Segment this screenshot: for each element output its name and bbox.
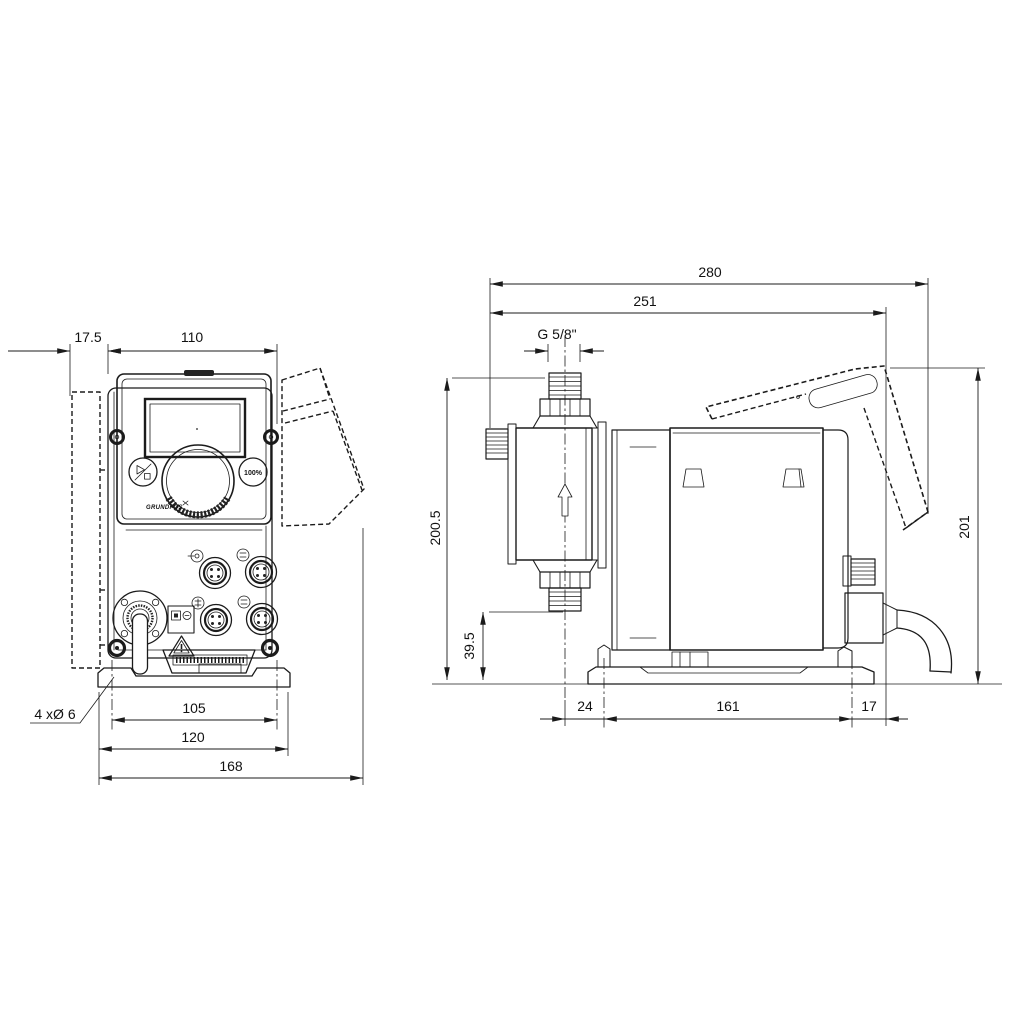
dim-side-cube-height: 201 (956, 515, 972, 539)
dim-side-depth-to-gland: 251 (633, 293, 657, 309)
din-rail-clip-front (163, 650, 255, 673)
control-cube-tilted-side (706, 366, 928, 530)
mounting-foot-side (588, 645, 874, 730)
holes-label: 4 xØ 6 (34, 706, 75, 722)
deaeration-knob[interactable] (486, 429, 508, 459)
control-cube-tilted-front (282, 368, 364, 526)
m12-connector[interactable] (200, 558, 231, 589)
grundfos-logo: GRUNDFOS (146, 501, 188, 511)
cable-gland-side (843, 556, 952, 673)
svg-text:GRUNDFOS: GRUNDFOS (146, 505, 183, 511)
dosing-head (486, 373, 606, 611)
m12-connector[interactable] (247, 604, 278, 635)
vent-slot (683, 469, 704, 487)
pump-housing-side (612, 428, 848, 650)
capacity-button-label: 100% (244, 470, 263, 477)
m12-connector[interactable] (246, 557, 277, 588)
side-view: 280 251 G 5/8" (427, 264, 1002, 730)
cable-gland-front (113, 591, 167, 674)
dim-side-foot-front-offset: 24 (577, 698, 593, 714)
dim-side-valve-height: 39.5 (461, 632, 477, 659)
housing-screw-right (263, 641, 278, 656)
play-stop-icon (135, 464, 151, 480)
start-stop-button[interactable] (129, 458, 157, 486)
mounting-holes-note: 4 xØ 6 (30, 677, 114, 723)
dim-side-foot-hole-spacing: 161 (716, 698, 740, 714)
back-plate-hidden (72, 392, 108, 668)
dim-front-width: 110 (181, 329, 204, 345)
dim-front-overall-width: 168 (219, 758, 243, 774)
mounting-plate-front (98, 660, 290, 730)
dim-side-overall-height: 200.5 (427, 510, 443, 545)
housing-screw-left (110, 641, 125, 656)
dim-connection-thread: G 5/8" (537, 326, 576, 342)
capacity-button[interactable]: 100% (239, 458, 267, 486)
cable-front (133, 614, 148, 674)
dim-side-overall-depth: 280 (698, 264, 722, 280)
dim-front-offset: 17.5 (74, 329, 101, 345)
dim-side-foot-rear-offset: 17 (861, 698, 877, 714)
dim-front-plate-width: 120 (181, 729, 205, 745)
m12-connector[interactable] (201, 605, 232, 636)
warning-triangle-icon (169, 636, 194, 656)
control-panel: 100% GRUNDFOS (111, 370, 278, 530)
panel-top-tab (184, 370, 214, 376)
technical-drawing: 17.5 110 (0, 0, 1024, 1024)
rating-label (168, 606, 194, 633)
dim-front-hole-spacing: 105 (182, 700, 206, 716)
up-arrow-icon (558, 484, 572, 516)
drawing-page: 17.5 110 (0, 0, 1024, 1024)
front-view: 17.5 110 (8, 329, 364, 785)
display-screen (145, 399, 245, 457)
